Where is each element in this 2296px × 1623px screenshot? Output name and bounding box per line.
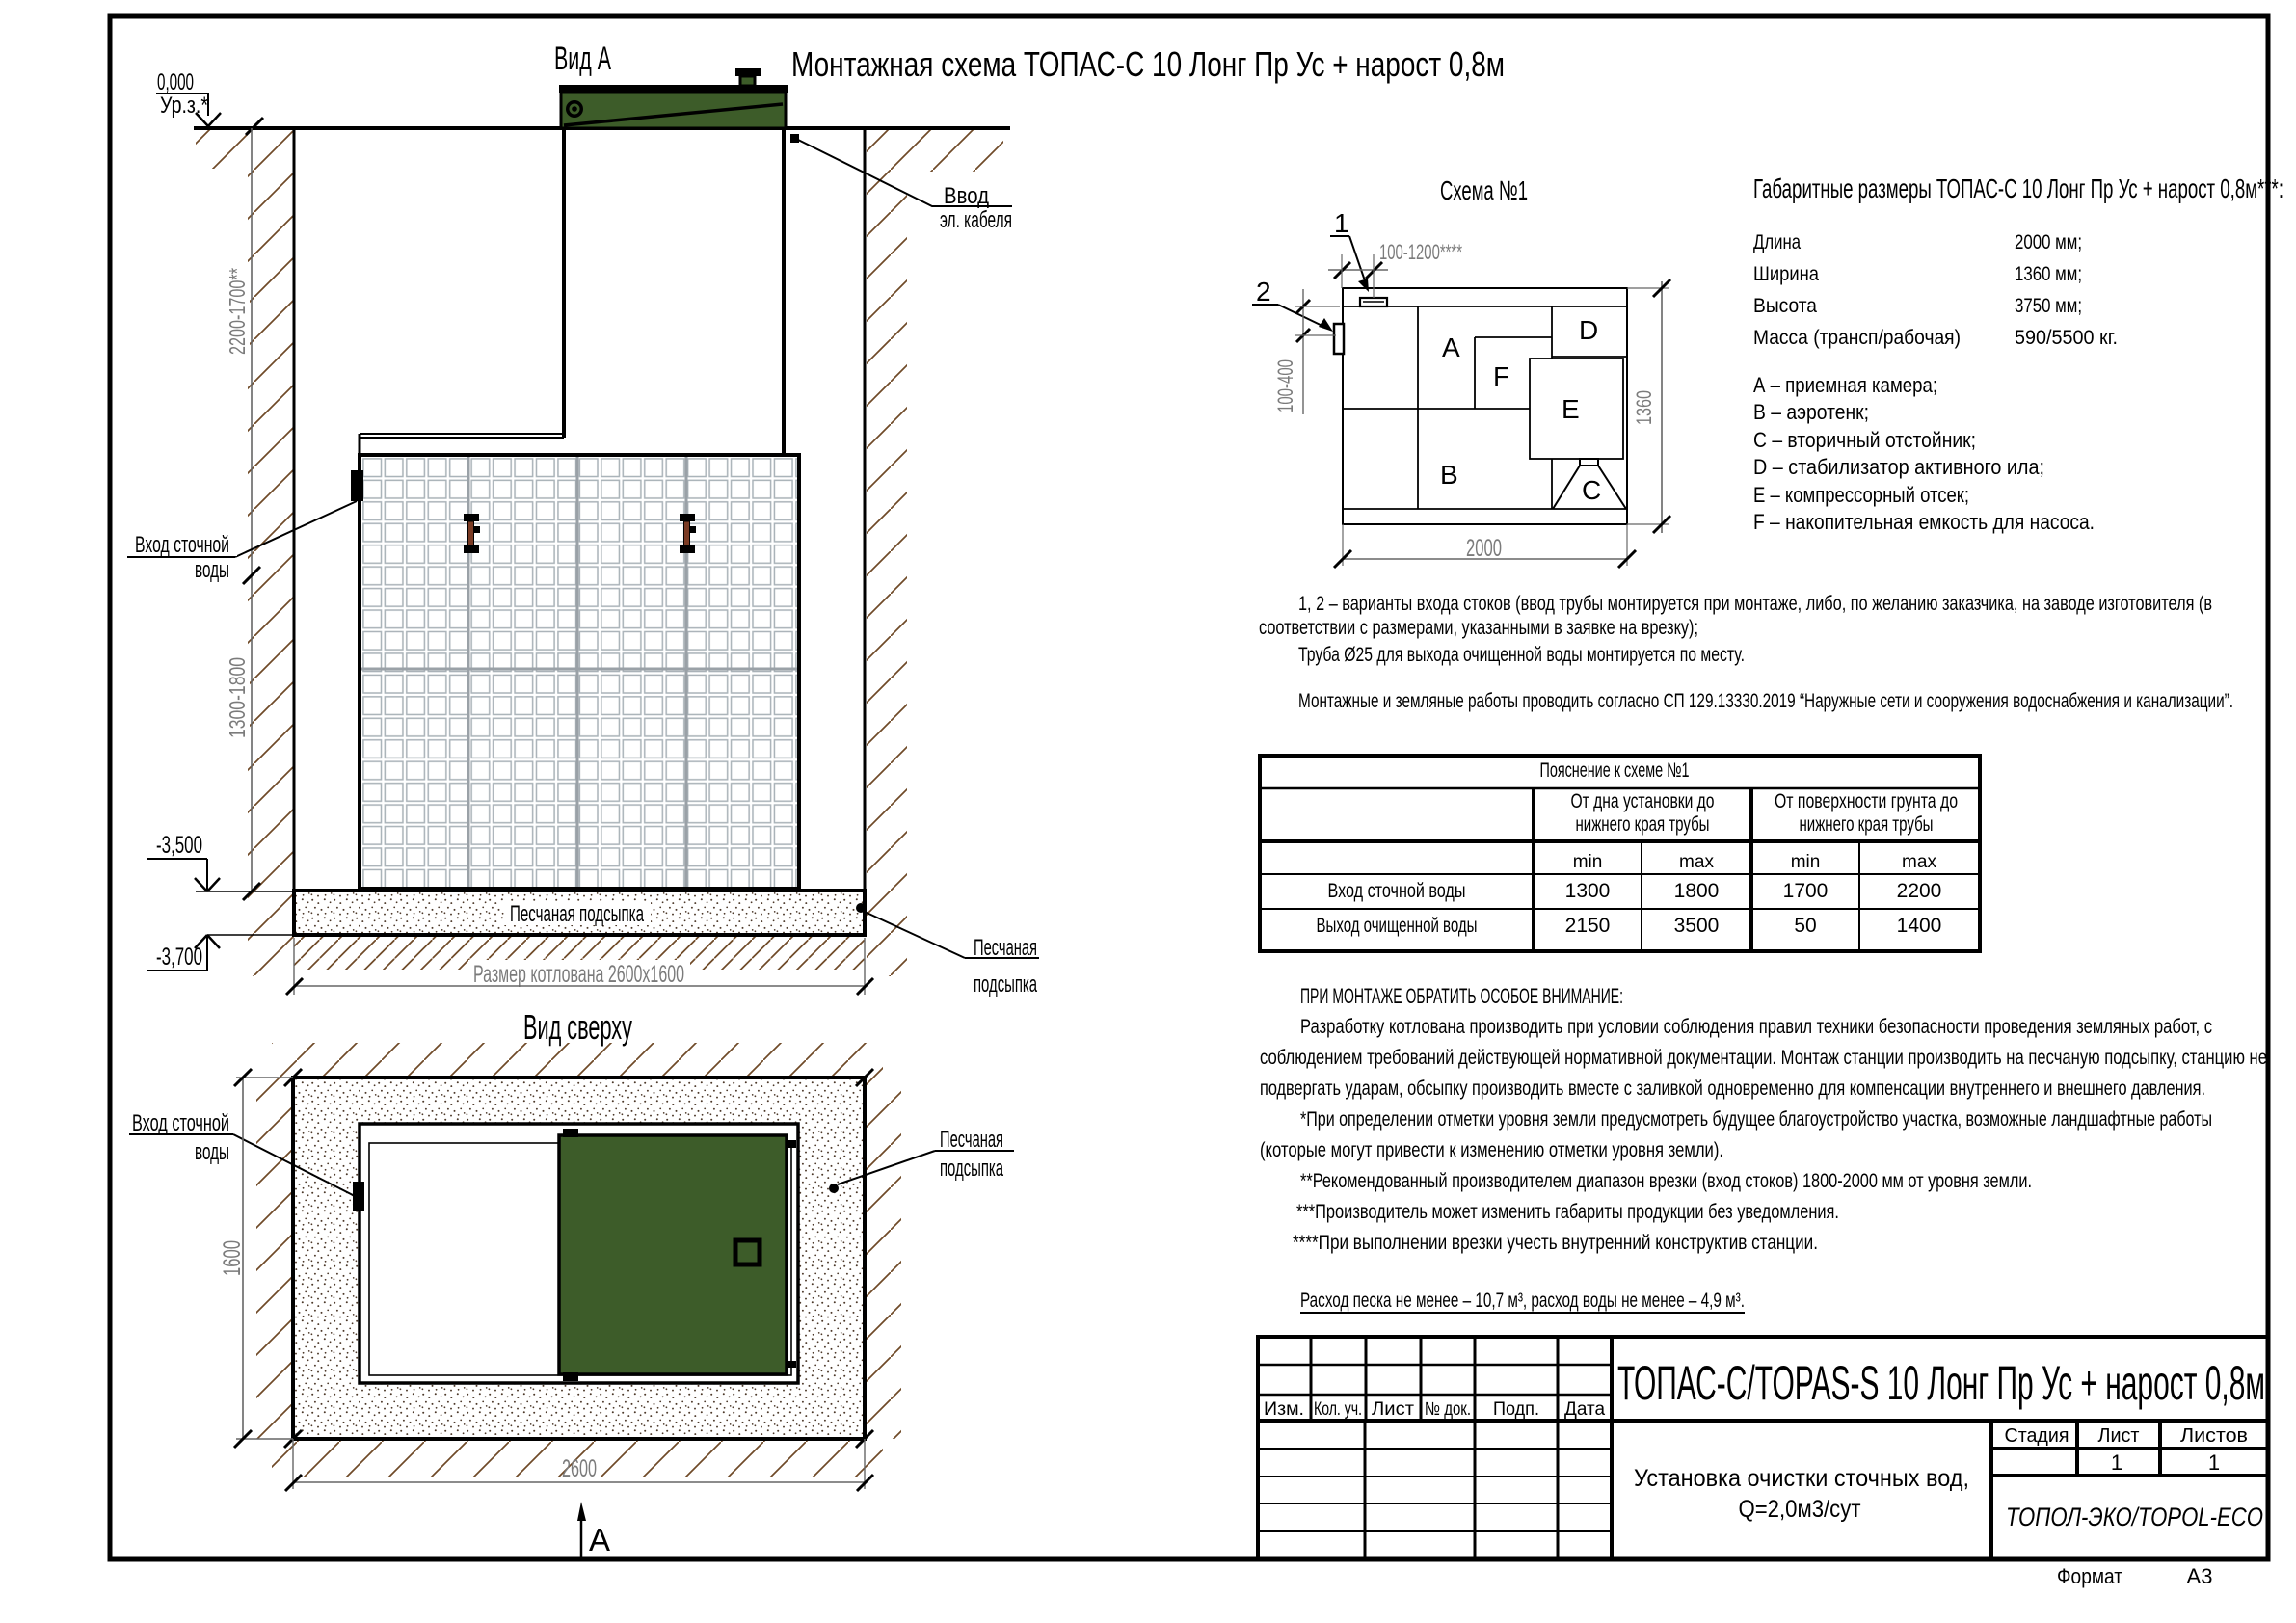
svg-text:max: max (1902, 852, 1936, 872)
svg-text:подвергать ударам, обсыпку про: подвергать ударам, обсыпку производить в… (1260, 1078, 2205, 1100)
svg-text:100-400: 100-400 (1273, 359, 1297, 412)
svg-text:min: min (1791, 852, 1821, 872)
svg-text:Длина: Длина (1753, 231, 1801, 253)
svg-text:F – накопительная емкость для: F – накопительная емкость для насоса. (1753, 510, 2095, 534)
svg-text:max: max (1679, 852, 1714, 872)
svg-text:(которые могут привести к изме: (которые могут привести к изменению отме… (1260, 1139, 1723, 1161)
svg-text:Схема №1: Схема №1 (1440, 175, 1528, 205)
svg-text:Ур.з.*: Ур.з.* (160, 93, 208, 119)
svg-text:***Производитель может изменит: ***Производитель может изменить габариты… (1296, 1201, 1839, 1223)
svg-text:Труба Ø25 для выхода очищенной: Труба Ø25 для выхода очищенной воды монт… (1298, 644, 1745, 666)
svg-text:**Рекомендованный производител: **Рекомендованный производителем диапазо… (1300, 1170, 2032, 1192)
svg-text:1300: 1300 (1565, 880, 1611, 902)
svg-text:Монтажная схема ТОПАС-С 10 Лон: Монтажная схема ТОПАС-С 10 Лонг Пр Ус + … (791, 44, 1505, 84)
svg-text:эл. кабеля: эл. кабеля (940, 207, 1012, 233)
svg-text:ТОПОЛ-ЭКО/TOPOL-ECO: ТОПОЛ-ЭКО/TOPOL-ECO (2006, 1503, 2263, 1531)
svg-text:Установка очистки сточных вод,: Установка очистки сточных вод, (1634, 1465, 1969, 1492)
svg-text:D: D (1579, 315, 1598, 345)
svg-text:Подп.: Подп. (1493, 1399, 1539, 1420)
svg-text:Вход сточной воды: Вход сточной воды (1328, 880, 1466, 902)
svg-text:1, 2 – варианты входа стоков: 1, 2 – варианты входа стоков (ввод трубы… (1298, 593, 2212, 615)
svg-text:Масса (трансп/рабочая): Масса (трансп/рабочая) (1753, 327, 1961, 349)
svg-text:Лист: Лист (1372, 1399, 1414, 1420)
svg-text:Ширина: Ширина (1753, 263, 1819, 285)
svg-text:Стадия: Стадия (2005, 1425, 2069, 1447)
svg-text:1700: 1700 (1783, 880, 1829, 902)
svg-text:Изм.: Изм. (1264, 1399, 1304, 1420)
svg-text:подсыпка: подсыпка (974, 971, 1037, 998)
svg-text:Вид сверху: Вид сверху (523, 1007, 632, 1047)
svg-text:А: А (1442, 333, 1460, 362)
svg-text:нижнего края трубы: нижнего края трубы (1800, 813, 1934, 836)
svg-text:0,000: 0,000 (157, 69, 194, 95)
svg-text:А – приемная камера;: А – приемная камера; (1753, 373, 1937, 397)
svg-text:воды: воды (195, 557, 229, 583)
svg-text:В: В (1440, 460, 1458, 490)
svg-text:От поверхности грунта до: От поверхности грунта до (1775, 790, 1958, 812)
svg-text:Листов: Листов (2180, 1425, 2248, 1447)
svg-text:1360 мм;: 1360 мм; (2015, 263, 2082, 285)
svg-text:2600: 2600 (562, 1455, 597, 1482)
svg-text:1600: 1600 (219, 1240, 246, 1276)
svg-text:590/5500 кг.: 590/5500 кг. (2015, 327, 2118, 349)
svg-text:воды: воды (195, 1139, 229, 1165)
svg-text:****При выполнении врезки учес: ****При выполнении врезки учесть внутрен… (1293, 1232, 1818, 1254)
svg-text:1300-1800: 1300-1800 (225, 657, 250, 738)
svg-text:Монтажные и земляные работы пр: Монтажные и земляные работы проводить со… (1298, 690, 2233, 712)
svg-text:А3: А3 (2187, 1564, 2213, 1588)
svg-text:Е: Е (1562, 394, 1580, 424)
svg-text:Вход сточной: Вход сточной (132, 1110, 229, 1136)
svg-text:50: 50 (1794, 915, 1816, 937)
svg-text:100-1200****: 100-1200**** (1379, 240, 1462, 264)
svg-text:Расход песка не менее – 10,7 м: Расход песка не менее – 10,7 м³, расход … (1300, 1290, 1745, 1312)
svg-text:нижнего края трубы: нижнего края трубы (1576, 813, 1710, 836)
svg-text:Ввод: Ввод (944, 183, 989, 209)
svg-text:Кол. уч.: Кол. уч. (1314, 1399, 1362, 1420)
svg-text:2150: 2150 (1565, 915, 1611, 937)
svg-text:Песчаная: Песчаная (940, 1127, 1003, 1153)
svg-text:1800: 1800 (1674, 880, 1720, 902)
svg-text:1: 1 (2111, 1450, 2122, 1475)
svg-text:А: А (589, 1522, 610, 1557)
svg-text:1400: 1400 (1897, 915, 1942, 937)
svg-text:2200: 2200 (1897, 880, 1942, 902)
svg-text:Высота: Высота (1753, 295, 1817, 317)
svg-text:-3,500: -3,500 (156, 832, 202, 859)
svg-text:ТОПАС-С/TOPAS-S 10 Лонг Пр Ус: ТОПАС-С/TOPAS-S 10 Лонг Пр Ус + нарост 0… (1617, 1356, 2265, 1410)
svg-text:1: 1 (1334, 208, 1349, 238)
svg-text:Лист: Лист (2098, 1425, 2140, 1447)
svg-text:Песчаная: Песчаная (974, 935, 1037, 961)
svg-text:1360: 1360 (1632, 390, 1656, 425)
svg-text:Выход очищенной воды: Выход очищенной воды (1317, 915, 1478, 937)
svg-text:Размер котлована 2600х1600: Размер котлована 2600х1600 (473, 961, 684, 988)
svg-text:Формат: Формат (2057, 1564, 2122, 1588)
svg-text:3750 мм;: 3750 мм; (2015, 295, 2082, 317)
svg-text:Разработку котлована производи: Разработку котлована производить при усл… (1300, 1016, 2212, 1038)
svg-text:Песчаная подсыпка: Песчаная подсыпка (510, 901, 644, 927)
svg-text:min: min (1573, 852, 1603, 872)
svg-text:Q=2,0м3/сут: Q=2,0м3/сут (1739, 1496, 1861, 1523)
svg-text:Пояснение к схеме №1: Пояснение к схеме №1 (1540, 759, 1690, 782)
svg-text:ПРИ МОНТАЖЕ ОБРАТИТЬ ОСОБОЕ ВН: ПРИ МОНТАЖЕ ОБРАТИТЬ ОСОБОЕ ВНИМАНИЕ: (1300, 984, 1623, 1008)
svg-text:2000 мм;: 2000 мм; (2015, 231, 2082, 253)
svg-text:соблюдением требований действу: соблюдением требований действующей норма… (1260, 1047, 2267, 1069)
svg-text:подсыпка: подсыпка (940, 1156, 1003, 1182)
svg-text:3500: 3500 (1674, 915, 1720, 937)
svg-text:2000: 2000 (1466, 535, 1502, 562)
svg-text:Е – компрессорный отсек;: Е – компрессорный отсек; (1753, 483, 1969, 507)
svg-text:С: С (1582, 475, 1601, 505)
svg-text:От дна установки до: От дна установки до (1571, 790, 1715, 812)
svg-text:В – аэротенк;: В – аэротенк; (1753, 400, 1869, 424)
svg-text:*При определении отметки уровн: *При определении отметки уровня земли пр… (1300, 1108, 2212, 1131)
svg-text:Вход сточной: Вход сточной (135, 532, 229, 558)
svg-text:С – вторичный отстойник;: С – вторичный отстойник; (1753, 428, 1976, 452)
svg-text:1: 1 (2208, 1450, 2220, 1475)
svg-text:Габаритные размеры ТОПАС-С 10: Габаритные размеры ТОПАС-С 10 Лонг Пр Ус… (1753, 173, 2283, 203)
svg-text:соответствии с размерами, указ: соответствии с размерами, указанными в з… (1259, 617, 1698, 639)
svg-text:2: 2 (1256, 277, 1271, 306)
svg-text:Дата: Дата (1564, 1399, 1605, 1420)
svg-text:2200-1700**: 2200-1700** (225, 268, 250, 355)
svg-text:Вид А: Вид А (554, 40, 611, 77)
svg-text:D – стабилизатор активного ила: D – стабилизатор активного ила; (1753, 455, 2044, 479)
svg-text:F: F (1493, 361, 1509, 391)
svg-text:№ док.: № док. (1425, 1399, 1471, 1420)
